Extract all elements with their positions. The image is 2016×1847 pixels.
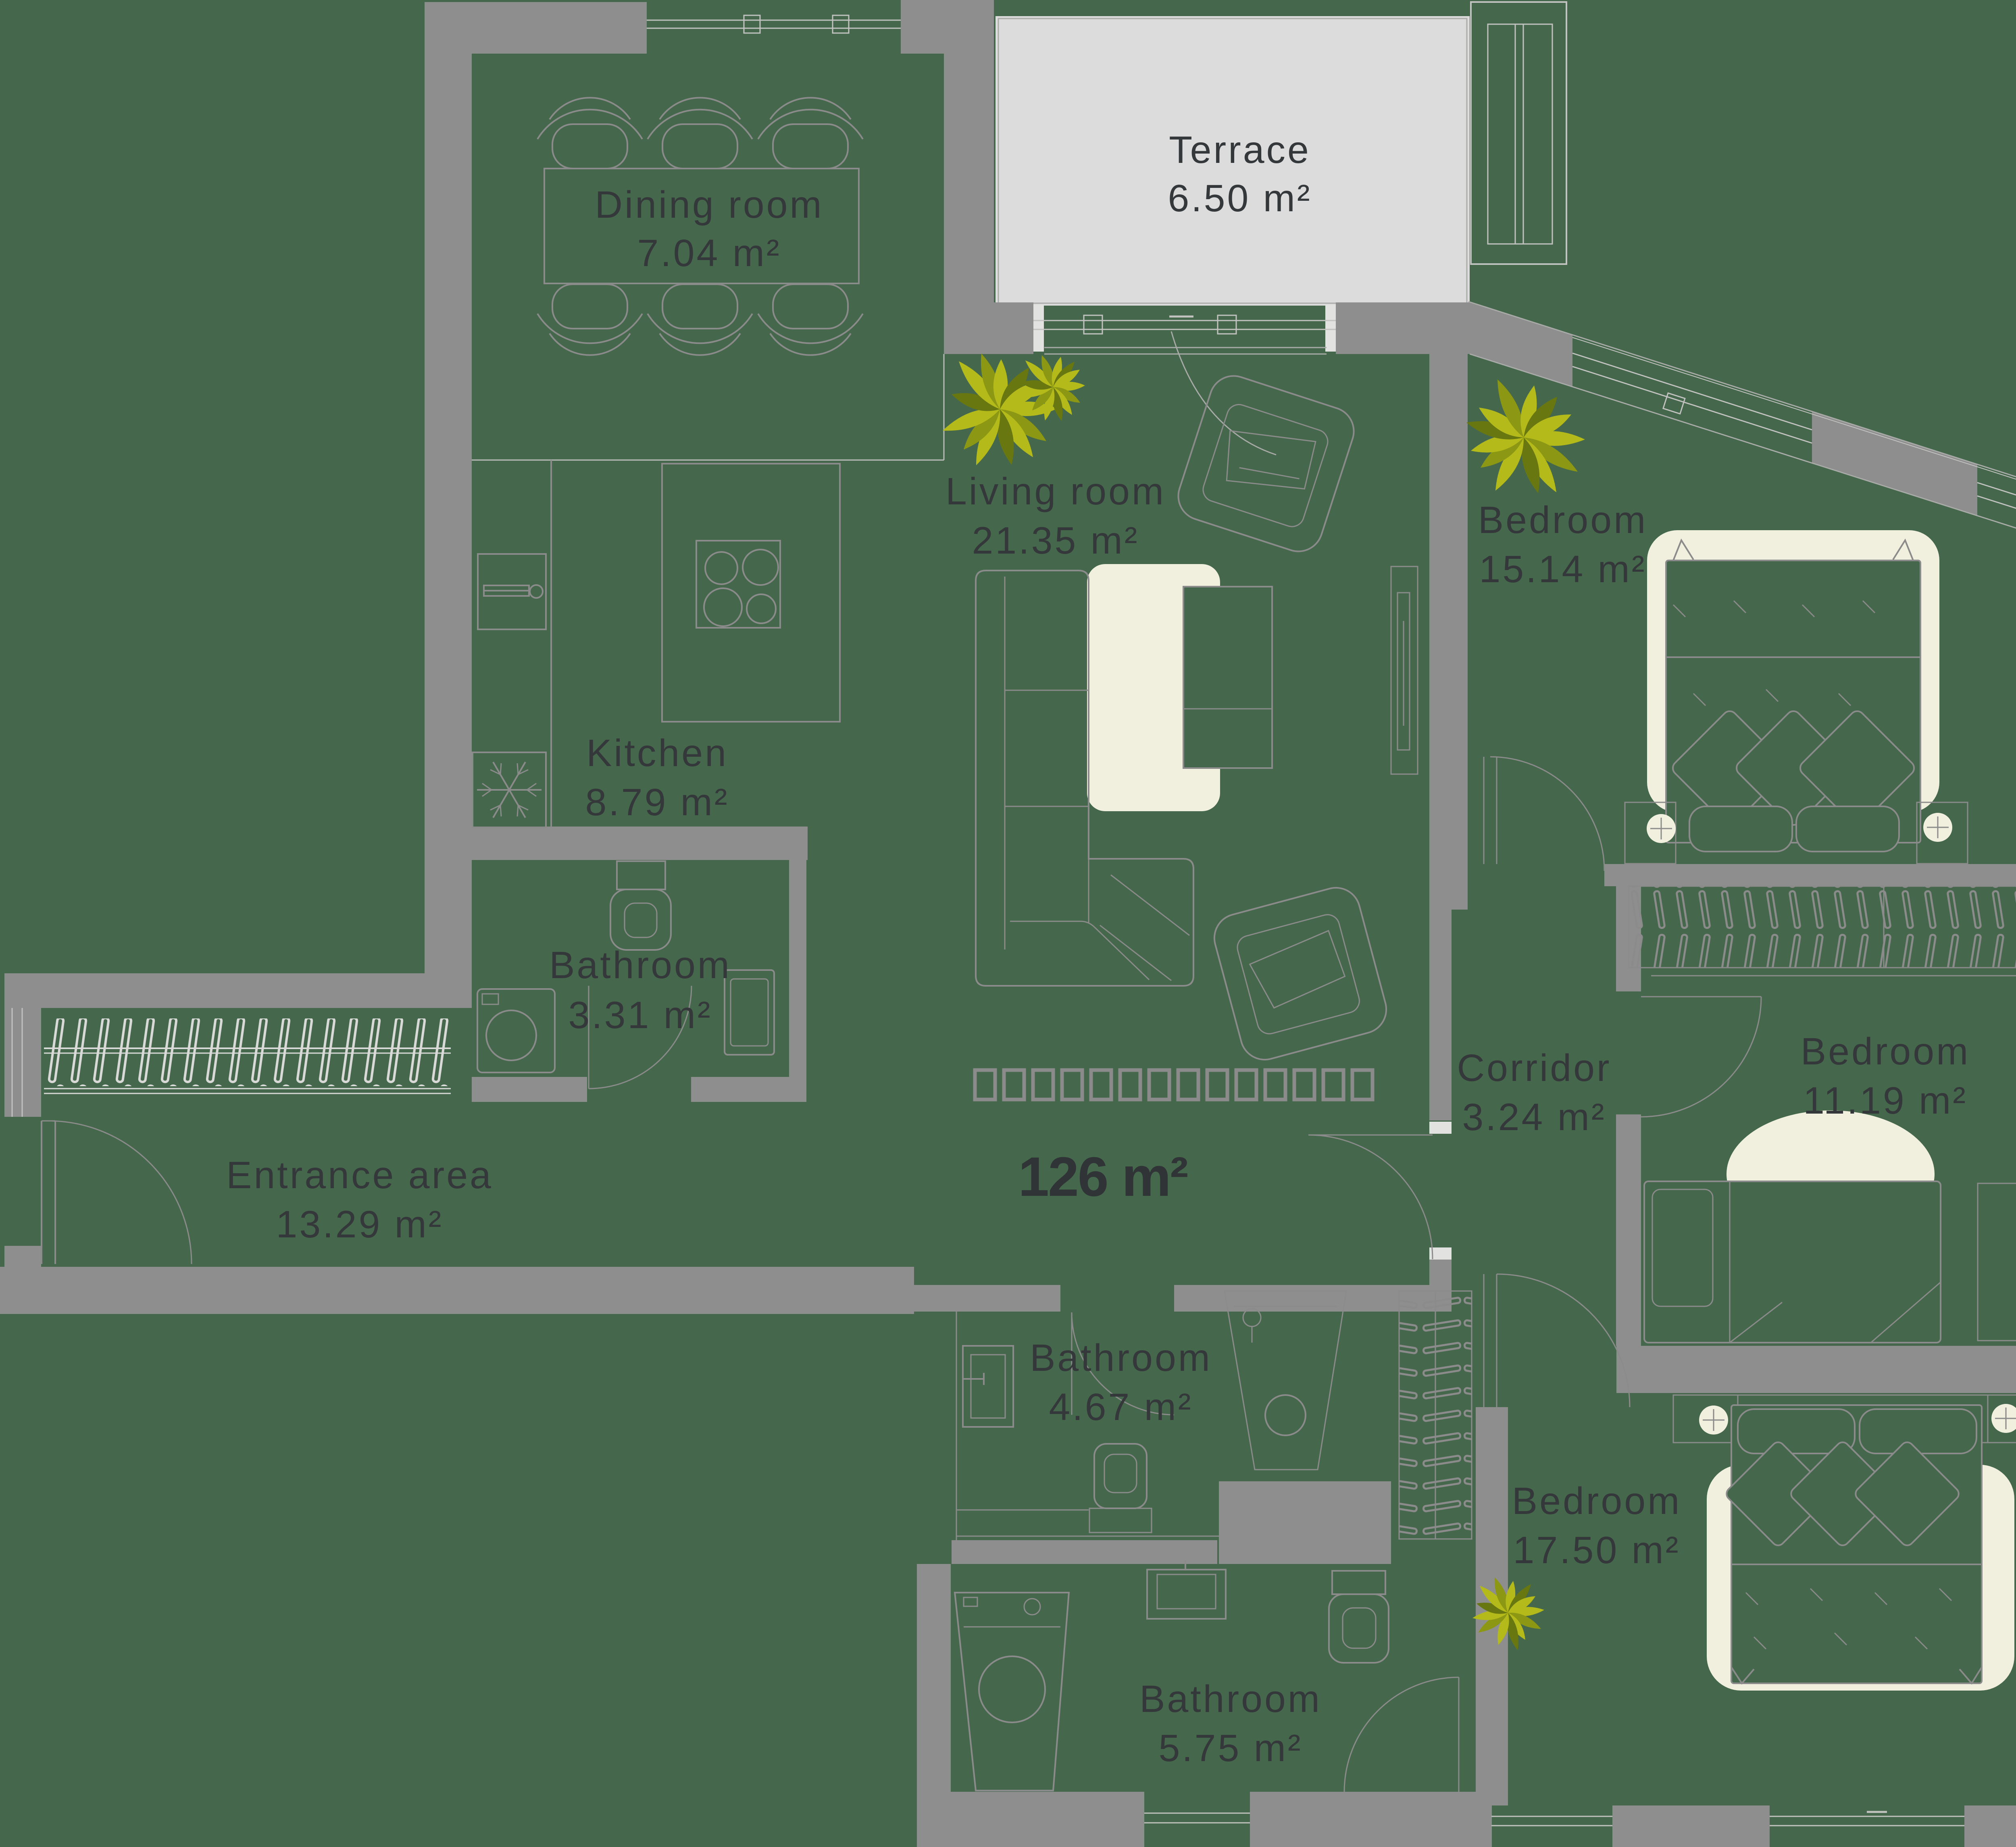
svg-text:5.75 m²: 5.75 m² — [1158, 1727, 1302, 1770]
svg-text:6.50 m²: 6.50 m² — [1168, 177, 1312, 220]
svg-text:Bathroom: Bathroom — [1030, 1337, 1212, 1379]
svg-text:Bathroom: Bathroom — [1139, 1678, 1322, 1720]
svg-text:Living room: Living room — [946, 470, 1166, 513]
svg-text:Terrace: Terrace — [1169, 129, 1311, 171]
svg-text:Bathroom: Bathroom — [549, 944, 731, 987]
svg-text:3.31 m²: 3.31 m² — [568, 994, 712, 1037]
svg-text:21.35 m²: 21.35 m² — [972, 519, 1139, 562]
svg-text:11.19 m²: 11.19 m² — [1803, 1079, 1968, 1122]
svg-text:Bedroom: Bedroom — [1478, 499, 1647, 541]
svg-text:17.50 m²: 17.50 m² — [1513, 1529, 1681, 1572]
svg-text:8.79 m²: 8.79 m² — [585, 781, 729, 824]
svg-text:Bedroom: Bedroom — [1512, 1480, 1681, 1522]
svg-text:Bedroom: Bedroom — [1801, 1030, 1970, 1073]
svg-text:126 m²: 126 m² — [1018, 1146, 1187, 1208]
svg-text:3.24 m²: 3.24 m² — [1462, 1096, 1606, 1139]
svg-text:7.04 m²: 7.04 m² — [637, 232, 781, 275]
svg-text:Entrance area: Entrance area — [226, 1154, 493, 1197]
svg-text:Kitchen: Kitchen — [586, 732, 728, 775]
svg-text:Dining room: Dining room — [595, 183, 823, 226]
svg-text:4.67 m²: 4.67 m² — [1049, 1386, 1193, 1428]
svg-text:13.29 m²: 13.29 m² — [276, 1203, 444, 1246]
svg-text:15.14 m²: 15.14 m² — [1479, 548, 1647, 591]
svg-text:Corridor: Corridor — [1457, 1047, 1611, 1089]
